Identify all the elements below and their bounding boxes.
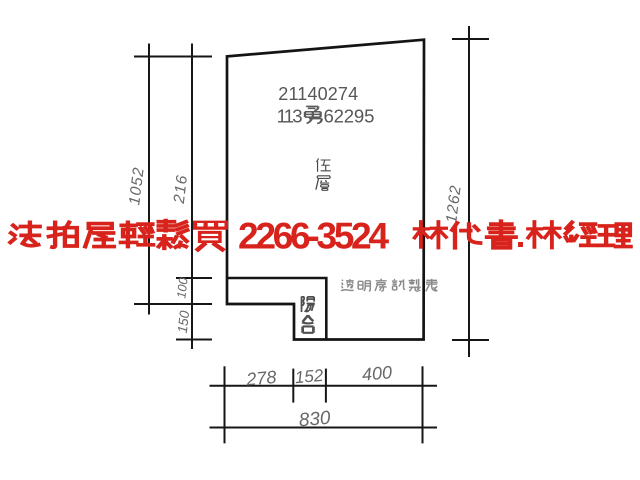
svg-text:21140274: 21140274 (278, 84, 358, 104)
svg-text:150: 150 (175, 309, 193, 334)
svg-text:152: 152 (294, 366, 324, 387)
svg-text:100: 100 (174, 277, 190, 299)
svg-text:2266-3524: 2266-3524 (238, 215, 389, 257)
svg-text:400: 400 (361, 362, 393, 385)
svg-text:1262: 1262 (443, 184, 465, 224)
svg-text:278: 278 (244, 367, 277, 390)
svg-text:62295: 62295 (324, 105, 375, 126)
svg-text:1052: 1052 (126, 166, 148, 206)
svg-text:830: 830 (298, 408, 332, 432)
svg-text:216: 216 (171, 174, 192, 206)
svg-text:113: 113 (277, 105, 303, 126)
